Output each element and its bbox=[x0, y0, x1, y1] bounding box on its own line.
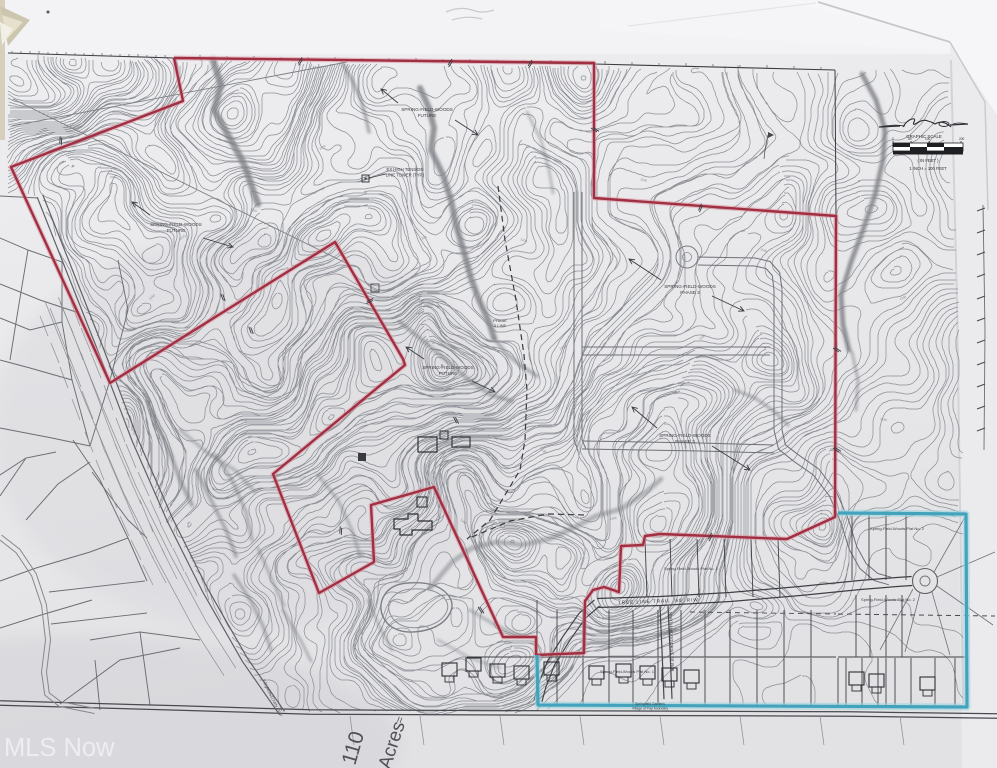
svg-text:FUTURE: FUTURE bbox=[167, 228, 186, 233]
svg-text:200: 200 bbox=[959, 137, 965, 141]
svg-text:3 LINE: 3 LINE bbox=[494, 323, 507, 328]
svg-text:PHASE 3: PHASE 3 bbox=[680, 290, 700, 295]
svg-text:0: 0 bbox=[892, 137, 894, 141]
svg-text:( IN FEET ): ( IN FEET ) bbox=[917, 158, 939, 163]
svg-text:PHASE 3: PHASE 3 bbox=[675, 439, 695, 444]
svg-text:LINE TOWER (TYP.): LINE TOWER (TYP.) bbox=[386, 172, 425, 177]
svg-text:Village of Twp boundary: Village of Twp boundary bbox=[632, 707, 668, 711]
svg-text:EX HIGH TENSION: EX HIGH TENSION bbox=[387, 167, 424, 172]
svg-text:FUTURE: FUTURE bbox=[418, 113, 437, 118]
svg-text:SPRING-FIELD-WOODS: SPRING-FIELD-WOODS bbox=[150, 222, 202, 227]
svg-text:FUTURE: FUTURE bbox=[439, 371, 458, 376]
svg-text:Spring-Field-Woods Plat No. 1: Spring-Field-Woods Plat No. 1 bbox=[664, 566, 719, 571]
svg-text:Spring-Field-Woods Plat No. 1: Spring-Field-Woods Plat No. 1 bbox=[600, 669, 655, 674]
svg-text:1 INCH = 100 FEET: 1 INCH = 100 FEET bbox=[909, 166, 947, 171]
svg-text:Springfield Gardens: Springfield Gardens bbox=[635, 702, 665, 706]
svg-text:50: 50 bbox=[908, 137, 912, 141]
svg-text:MLS Now: MLS Now bbox=[4, 734, 115, 762]
svg-text:SPRING-FIELD-WOODS: SPRING-FIELD-WOODS bbox=[422, 365, 474, 370]
svg-text:Spring-Field-Woods Plat No. 2: Spring-Field-Woods Plat No. 2 bbox=[870, 526, 925, 531]
svg-text:100: 100 bbox=[925, 137, 931, 141]
svg-text:SPRING-FIELD-WOODS: SPRING-FIELD-WOODS bbox=[401, 107, 453, 112]
svg-text:SPRING-FIELD-WOODS: SPRING-FIELD-WOODS bbox=[659, 433, 711, 438]
svg-text:Spring-Field-Woods Plat No. 2: Spring-Field-Woods Plat No. 2 bbox=[861, 597, 916, 602]
svg-text:SPRING-FIELD-WOODS: SPRING-FIELD-WOODS bbox=[664, 284, 716, 289]
